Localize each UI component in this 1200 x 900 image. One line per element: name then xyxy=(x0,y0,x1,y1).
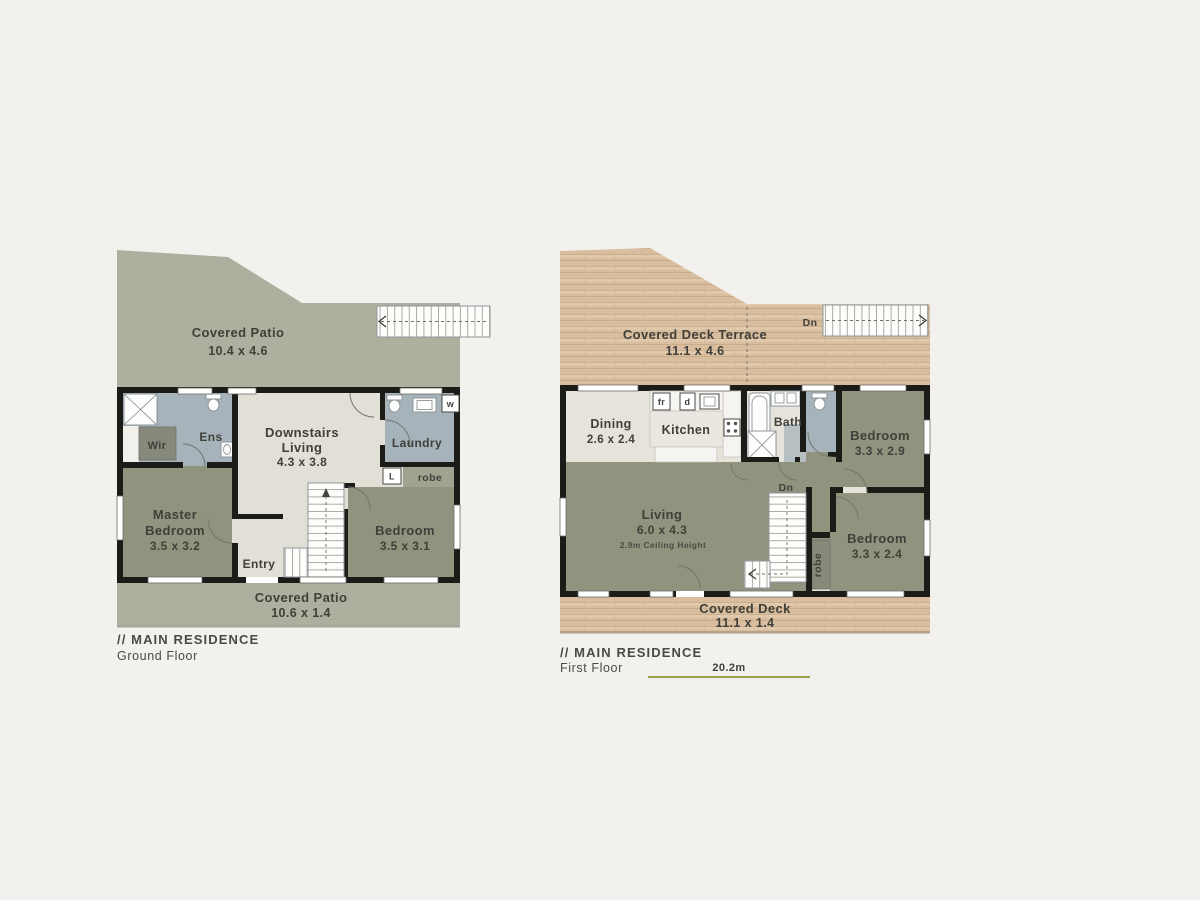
sink-icon-ens xyxy=(221,442,233,457)
label-living-2: Living xyxy=(282,440,323,455)
label-ens: Ens xyxy=(199,430,222,444)
label-living: Living xyxy=(642,507,683,522)
shower-icon xyxy=(748,431,776,459)
caption-title: // MAIN RESIDENCE xyxy=(560,645,702,660)
caption-title: // MAIN RESIDENCE xyxy=(117,632,259,647)
ground-floor-plan: w L xyxy=(108,238,503,673)
label-entry: Entry xyxy=(243,557,276,571)
label-bath: Bath xyxy=(774,415,802,429)
svg-text:w: w xyxy=(446,399,455,409)
exterior-stairs-icon xyxy=(377,306,490,337)
label-dining-dims: 2.6 x 2.4 xyxy=(587,434,636,446)
label-kitchen: Kitchen xyxy=(662,423,711,437)
scale-label: 20.2m xyxy=(712,662,745,674)
label-dining: Dining xyxy=(590,417,631,431)
label-wir: Wir xyxy=(148,440,167,452)
label-deck-bottom: Covered Deck xyxy=(699,601,791,616)
label-deck-bottom-dims: 11.1 x 1.4 xyxy=(716,616,775,630)
label-robe: robe xyxy=(812,553,824,577)
vanity-icon xyxy=(771,391,800,406)
label-bedroom-dims: 3.5 x 3.1 xyxy=(380,539,430,553)
svg-text:L: L xyxy=(389,472,395,482)
label-bedroom-lower: Bedroom xyxy=(847,531,907,546)
label-master-2: Bedroom xyxy=(145,523,205,538)
living-door-opening xyxy=(676,591,704,597)
label-bedroom: Bedroom xyxy=(375,523,435,538)
svg-text:fr: fr xyxy=(658,397,665,407)
entry-steps-icon xyxy=(284,548,308,577)
entry-door-opening xyxy=(246,577,278,583)
label-deck-terrace: Covered Deck Terrace xyxy=(623,327,767,342)
label-living-1: Downstairs xyxy=(265,425,339,440)
stairs-icon xyxy=(308,483,344,577)
first-floor-plan: Dn fr d xyxy=(548,238,948,683)
linen-cupboard-icon: L xyxy=(383,468,401,484)
stove-icon xyxy=(724,419,740,436)
label-bedroom-lower-dims: 3.3 x 2.4 xyxy=(852,547,902,561)
laundry-sink-icon xyxy=(413,398,436,412)
label-bedroom-upper-dims: 3.3 x 2.9 xyxy=(855,444,905,458)
shower-icon xyxy=(124,394,157,425)
label-laundry: Laundry xyxy=(392,436,442,450)
label-master-dims: 3.5 x 3.2 xyxy=(150,539,200,553)
label-patio-bottom: Covered Patio xyxy=(255,590,348,605)
label-living-dims: 6.0 x 4.3 xyxy=(637,523,687,537)
label-patio-top-dims: 10.4 x 4.6 xyxy=(208,344,268,358)
label-dn-stairs: Dn xyxy=(779,482,794,494)
label-master-1: Master xyxy=(153,507,197,522)
dishwasher-icon: d xyxy=(680,393,695,410)
label-deck-terrace-dims: 11.1 x 4.6 xyxy=(666,344,725,358)
label-patio-top: Covered Patio xyxy=(192,325,285,340)
label-patio-bottom-dims: 10.6 x 1.4 xyxy=(271,606,331,620)
exterior-stairs-icon xyxy=(823,305,928,336)
label-ceiling-height: 2.9m Ceiling Height xyxy=(620,540,706,550)
label-robe: robe xyxy=(418,472,442,484)
svg-text:d: d xyxy=(685,397,691,407)
label-living-dims: 4.3 x 3.8 xyxy=(277,455,327,469)
label-dn-terrace: Dn xyxy=(803,317,818,329)
ens-floor-strip xyxy=(123,426,139,466)
kitchen-sink-icon xyxy=(700,394,719,409)
washing-machine-icon: w xyxy=(442,395,459,412)
deck-shadow-line xyxy=(560,631,930,634)
floor-plan-sheet: w L xyxy=(0,0,1200,900)
label-bedroom-upper: Bedroom xyxy=(850,428,910,443)
fridge-icon: fr xyxy=(653,393,670,410)
caption-floor: Ground Floor xyxy=(117,649,198,663)
caption-floor: First Floor xyxy=(560,661,623,675)
patio-shadow-line xyxy=(117,625,460,628)
